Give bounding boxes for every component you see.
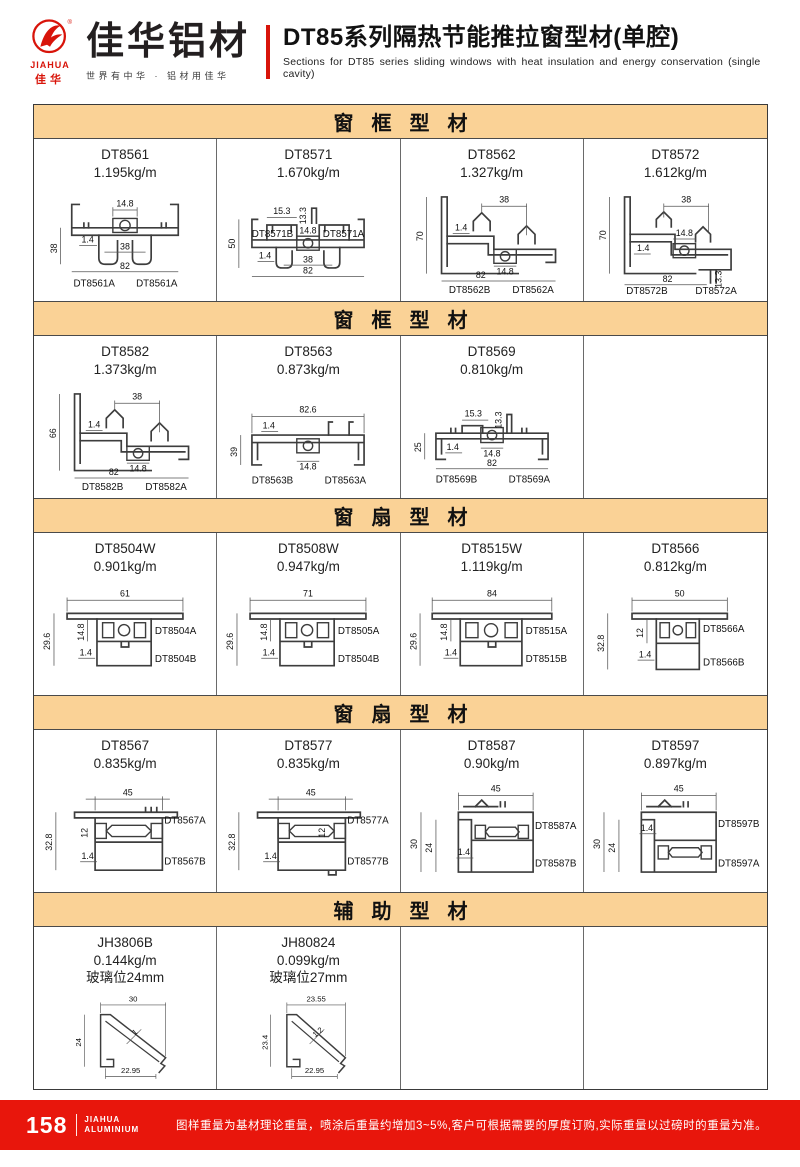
footer-brand-top: JIAHUA xyxy=(84,1115,139,1125)
svg-text:70: 70 xyxy=(414,231,424,241)
section-header: 窗扇型材 xyxy=(34,695,767,730)
profile-weight: 0.099kg/m xyxy=(217,952,399,970)
svg-text:39: 39 xyxy=(229,447,239,457)
profile-code: JH3806B xyxy=(34,934,216,952)
svg-text:1.4: 1.4 xyxy=(444,648,456,658)
svg-text:1.4: 1.4 xyxy=(637,243,649,253)
svg-text:29.6: 29.6 xyxy=(42,633,52,650)
logo-brand-cn: 佳华 xyxy=(35,71,65,87)
svg-text:13.3: 13.3 xyxy=(299,207,309,224)
svg-text:DT8504B: DT8504B xyxy=(338,654,380,665)
svg-text:29.6: 29.6 xyxy=(226,633,236,650)
svg-text:32.8: 32.8 xyxy=(596,635,606,652)
profile-code: DT8597 xyxy=(584,737,767,755)
svg-text:15.3: 15.3 xyxy=(464,408,481,418)
profile-drawing: 71 29.6 14.8 1.4 DT8505A DT8504B xyxy=(222,576,394,690)
profile-code: DT8587 xyxy=(401,737,583,755)
profile-code: DT8577 xyxy=(217,737,399,755)
section-frame-1: 窗框型材 DT8561 1.195kg/m 14.8 38 1.4 xyxy=(34,105,767,301)
page-subtitle: Sections for DT85 series sliding windows… xyxy=(283,56,778,80)
profile-code: DT8515W xyxy=(401,540,583,558)
footer-brand: JIAHUA ALUMINIUM xyxy=(84,1115,139,1134)
profile-row: DT8582 1.373kg/m 38 66 1.4 xyxy=(34,336,767,498)
svg-text:14.8: 14.8 xyxy=(259,623,269,640)
profile-code: DT8504W xyxy=(34,540,216,558)
profile-drawing: 61 29.6 14.8 1.4 DT8504A DT8504B xyxy=(39,576,211,690)
svg-text:70: 70 xyxy=(598,230,608,240)
svg-text:1.4: 1.4 xyxy=(639,649,651,659)
profile-cell-dt8567: DT8567 0.835kg/m 45 32.8 12 1.4 xyxy=(34,730,217,892)
svg-text:23.4: 23.4 xyxy=(261,1034,270,1050)
svg-text:14.8: 14.8 xyxy=(76,623,86,640)
svg-text:82: 82 xyxy=(303,266,313,276)
svg-text:45: 45 xyxy=(306,788,316,798)
profile-weight: 1.612kg/m xyxy=(584,164,767,182)
svg-text:45: 45 xyxy=(674,784,684,794)
brand-tagline: 世界有中华 · 铝材用佳华 xyxy=(86,69,250,82)
svg-text:66: 66 xyxy=(48,428,58,438)
profile-cell-dt8572: DT8572 1.612kg/m 38 70 14.8 1.4 xyxy=(584,139,767,301)
profile-row: DT8561 1.195kg/m 14.8 38 1.4 xyxy=(34,139,767,301)
profile-drawing: 14.8 38 1.4 38 82 DT8561A DT8561A xyxy=(39,182,211,296)
profile-drawing: 38 70 1.4 14.8 82 DT8562B DT8562A xyxy=(406,182,578,296)
profile-weight: 0.144kg/m xyxy=(34,952,216,970)
svg-text:DT8577B: DT8577B xyxy=(348,857,390,868)
catalog-page: ® JIAHUA 佳华 佳华铝材 世界有中华 · 铝材用佳华 DT85系列隔热节… xyxy=(0,0,800,1167)
svg-text:38: 38 xyxy=(49,243,59,253)
svg-text:DT8562B: DT8562B xyxy=(449,285,491,296)
profile-cell-dt8561: DT8561 1.195kg/m 14.8 38 1.4 xyxy=(34,139,217,301)
profile-weight: 1.327kg/m xyxy=(401,164,583,182)
svg-text:12: 12 xyxy=(317,828,327,838)
profile-drawing: 84 29.6 14.8 1.4 DT8515A DT8515B xyxy=(406,576,578,690)
profile-drawing: 30 24 1 22.95 xyxy=(45,987,205,1083)
title-block: DT85系列隔热节能推拉窗型材(单腔) Sections for DT85 se… xyxy=(283,24,778,80)
profile-weight: 0.901kg/m xyxy=(34,558,216,576)
section-header: 辅助型材 xyxy=(34,892,767,927)
svg-text:14.8: 14.8 xyxy=(439,623,449,640)
footer-brand-bottom: ALUMINIUM xyxy=(84,1125,139,1135)
svg-text:38: 38 xyxy=(682,195,692,205)
logo-brand-en: JIAHUA xyxy=(30,60,70,70)
profile-code: DT8508W xyxy=(217,540,399,558)
svg-text:1.4: 1.4 xyxy=(82,235,94,245)
svg-text:DT8567A: DT8567A xyxy=(164,816,206,827)
profile-code: DT8569 xyxy=(401,343,583,361)
profile-cell-dt8563: DT8563 0.873kg/m 82.6 1.4 39 14.8 xyxy=(217,336,400,498)
profile-code: DT8571 xyxy=(217,146,399,164)
svg-text:®: ® xyxy=(68,19,73,26)
svg-text:71: 71 xyxy=(303,589,313,599)
svg-text:82: 82 xyxy=(109,467,119,477)
section-sash-1: 窗扇型材 DT8504W 0.901kg/m 61 29.6 14.8 xyxy=(34,498,767,695)
profile-weight: 0.810kg/m xyxy=(401,361,583,379)
svg-text:DT8571B: DT8571B xyxy=(252,229,294,240)
svg-text:1.4: 1.4 xyxy=(446,442,458,452)
profile-code: DT8582 xyxy=(34,343,216,361)
svg-text:1.4: 1.4 xyxy=(457,847,469,857)
page-header: ® JIAHUA 佳华 佳华铝材 世界有中华 · 铝材用佳华 DT85系列隔热节… xyxy=(22,12,778,92)
profile-cell-empty xyxy=(584,336,767,498)
svg-text:30: 30 xyxy=(593,839,603,849)
profile-code: JH80824 xyxy=(217,934,399,952)
svg-text:DT8571A: DT8571A xyxy=(323,229,365,240)
svg-text:1.4: 1.4 xyxy=(455,223,467,233)
svg-text:DT8569A: DT8569A xyxy=(508,475,550,486)
svg-text:DT8515B: DT8515B xyxy=(525,654,567,665)
svg-text:32.8: 32.8 xyxy=(227,834,237,851)
profile-row: JH3806B 0.144kg/m 玻璃位24mm 30 24 1 22.95 xyxy=(34,927,767,1089)
svg-text:DT8561A: DT8561A xyxy=(136,279,178,290)
page-number: 158 xyxy=(26,1112,67,1139)
brand-block: 佳华铝材 世界有中华 · 铝材用佳华 xyxy=(86,23,250,82)
svg-text:82: 82 xyxy=(475,270,485,280)
glass-position: 玻璃位24mm xyxy=(34,969,216,987)
svg-text:25: 25 xyxy=(413,442,423,452)
page-footer: 158 JIAHUA ALUMINIUM 图样重量为基材理论重量，喷涂后重量约增… xyxy=(0,1100,800,1150)
svg-text:DT8582A: DT8582A xyxy=(146,482,188,493)
svg-text:38: 38 xyxy=(120,241,130,251)
svg-text:14.8: 14.8 xyxy=(117,198,134,208)
svg-text:1.4: 1.4 xyxy=(263,421,275,431)
svg-text:DT8563A: DT8563A xyxy=(325,476,367,487)
profile-drawing: 82.6 1.4 39 14.8 DT8563B DT8563A xyxy=(222,379,394,493)
svg-text:45: 45 xyxy=(490,784,500,794)
profile-drawing: 45 30 24 1.4 DT8587A DT8587B xyxy=(406,773,578,887)
section-auxiliary: 辅助型材 JH3806B 0.144kg/m 玻璃位24mm 30 24 1 xyxy=(34,892,767,1089)
profile-weight: 0.90kg/m xyxy=(401,755,583,773)
svg-text:14.8: 14.8 xyxy=(496,267,513,277)
svg-text:DT8504A: DT8504A xyxy=(155,626,197,637)
svg-text:38: 38 xyxy=(499,195,509,205)
svg-text:82: 82 xyxy=(487,458,497,468)
svg-text:DT8504B: DT8504B xyxy=(155,654,197,665)
profile-drawing: 45 32.8 12 1.4 DT8577A DT8577B xyxy=(222,773,394,887)
profile-weight: 0.835kg/m xyxy=(217,755,399,773)
svg-text:61: 61 xyxy=(120,589,130,599)
page-title: DT85系列隔热节能推拉窗型材(单腔) xyxy=(283,24,778,52)
header-divider xyxy=(266,25,270,79)
svg-text:13.3: 13.3 xyxy=(714,271,724,288)
svg-text:24: 24 xyxy=(608,843,618,853)
svg-text:1.4: 1.4 xyxy=(88,420,100,430)
svg-text:DT8505A: DT8505A xyxy=(338,626,380,637)
profile-cell-dt8597: DT8597 0.897kg/m 45 30 24 1.4 xyxy=(584,730,767,892)
profile-cell-dt8571: DT8571 1.670kg/m 15.3 13.3 14.8 50 xyxy=(217,139,400,301)
svg-text:45: 45 xyxy=(123,788,133,798)
profile-drawing: 38 70 14.8 1.4 82 13.3 DT8572B DT8572A xyxy=(589,182,761,296)
profile-cell-dt8566: DT8566 0.812kg/m 50 32.8 12 1.4 xyxy=(584,533,767,695)
glass-position: 玻璃位27mm xyxy=(217,969,399,987)
svg-text:12: 12 xyxy=(80,828,90,838)
svg-text:38: 38 xyxy=(303,254,313,264)
profile-cell-dt8582: DT8582 1.373kg/m 38 66 1.4 xyxy=(34,336,217,498)
svg-text:82: 82 xyxy=(120,261,130,271)
svg-text:DT8567B: DT8567B xyxy=(164,857,206,868)
svg-text:30: 30 xyxy=(409,839,419,849)
profile-cell-dt8577: DT8577 0.835kg/m 45 32.8 12 1.4 xyxy=(217,730,400,892)
svg-text:30: 30 xyxy=(129,994,138,1003)
profile-weight: 1.195kg/m xyxy=(34,164,216,182)
profile-cell-dt8504w: DT8504W 0.901kg/m 61 29.6 14.8 1.4 xyxy=(34,533,217,695)
profile-drawing: 15.3 13.3 14.8 50 1.4 38 82 DT8571B DT85… xyxy=(222,182,394,296)
svg-text:DT8587A: DT8587A xyxy=(535,821,577,832)
svg-text:1.4: 1.4 xyxy=(82,851,94,861)
profile-drawing: 45 32.8 12 1.4 DT8567A DT8567B xyxy=(39,773,211,887)
svg-text:14.8: 14.8 xyxy=(130,464,147,474)
svg-text:14.8: 14.8 xyxy=(300,462,317,472)
profile-code: DT8561 xyxy=(34,146,216,164)
svg-text:DT8563B: DT8563B xyxy=(252,476,294,487)
profile-weight: 1.119kg/m xyxy=(401,558,583,576)
profile-weight: 0.812kg/m xyxy=(584,558,767,576)
svg-text:22.95: 22.95 xyxy=(305,1066,324,1075)
svg-text:DT8566A: DT8566A xyxy=(703,624,745,635)
profile-code: DT8567 xyxy=(34,737,216,755)
svg-text:DT8569B: DT8569B xyxy=(435,475,477,486)
svg-text:DT8572A: DT8572A xyxy=(696,286,738,296)
jiahua-logo-icon: ® xyxy=(27,17,73,59)
profile-row: DT8504W 0.901kg/m 61 29.6 14.8 1.4 xyxy=(34,533,767,695)
profile-cell-dt8508w: DT8508W 0.947kg/m 71 29.6 14.8 1.4 xyxy=(217,533,400,695)
svg-text:DT8561A: DT8561A xyxy=(74,279,116,290)
svg-text:50: 50 xyxy=(227,239,237,249)
svg-text:12: 12 xyxy=(636,628,646,638)
svg-text:24: 24 xyxy=(424,843,434,853)
profile-code: DT8562 xyxy=(401,146,583,164)
profile-code: DT8563 xyxy=(217,343,399,361)
profile-weight: 0.835kg/m xyxy=(34,755,216,773)
brand-name: 佳华铝材 xyxy=(86,23,250,61)
profile-cell-empty xyxy=(584,927,767,1089)
profile-drawing: 50 32.8 12 1.4 DT8566A DT8566B xyxy=(589,576,761,690)
svg-text:DT8597A: DT8597A xyxy=(718,859,760,870)
svg-text:82: 82 xyxy=(663,274,673,284)
profile-row: DT8567 0.835kg/m 45 32.8 12 1.4 xyxy=(34,730,767,892)
svg-text:DT8597B: DT8597B xyxy=(718,819,760,830)
svg-text:29.6: 29.6 xyxy=(408,633,418,650)
svg-text:1.4: 1.4 xyxy=(265,851,277,861)
svg-text:DT8582B: DT8582B xyxy=(82,482,124,493)
svg-text:DT8562A: DT8562A xyxy=(512,285,554,296)
svg-text:84: 84 xyxy=(487,589,497,599)
svg-text:14.8: 14.8 xyxy=(300,225,317,235)
profile-cell-dt8562: DT8562 1.327kg/m 38 70 1.4 xyxy=(401,139,584,301)
svg-text:24: 24 xyxy=(74,1037,83,1046)
section-header: 窗框型材 xyxy=(34,105,767,139)
svg-text:23.55: 23.55 xyxy=(307,994,326,1003)
profile-weight: 0.873kg/m xyxy=(217,361,399,379)
footer-note: 图样重量为基材理论重量，喷涂后重量约增加3~5%,客户可根据需要的厚度订购,实际… xyxy=(169,1117,774,1133)
section-frame-2: 窗框型材 DT8582 1.373kg/m 38 66 1.4 xyxy=(34,301,767,498)
footer-divider xyxy=(76,1114,77,1136)
svg-text:50: 50 xyxy=(675,589,685,599)
svg-text:32.8: 32.8 xyxy=(44,834,54,851)
svg-text:15.3: 15.3 xyxy=(274,206,291,216)
profile-code: DT8572 xyxy=(584,146,767,164)
profile-weight: 1.670kg/m xyxy=(217,164,399,182)
profile-code: DT8566 xyxy=(584,540,767,558)
profile-cell-dt8587: DT8587 0.90kg/m 45 30 24 1.4 xyxy=(401,730,584,892)
svg-text:22.95: 22.95 xyxy=(121,1066,140,1075)
svg-text:DT8577A: DT8577A xyxy=(348,816,390,827)
profile-cell-jh80824: JH80824 0.099kg/m 玻璃位27mm 23.55 23.4 1.2… xyxy=(217,927,400,1089)
svg-text:38: 38 xyxy=(132,392,142,402)
svg-text:1.4: 1.4 xyxy=(259,251,271,261)
svg-text:DT8515A: DT8515A xyxy=(525,626,567,637)
profile-cell-dt8515w: DT8515W 1.119kg/m 84 29.6 14.8 1.4 xyxy=(401,533,584,695)
svg-text:13.3: 13.3 xyxy=(493,412,503,429)
profile-weight: 0.897kg/m xyxy=(584,755,767,773)
svg-text:1.4: 1.4 xyxy=(80,648,92,658)
profile-cell-dt8569: DT8569 0.810kg/m 15.3 13.3 25 1.4 xyxy=(401,336,584,498)
profile-weight: 1.373kg/m xyxy=(34,361,216,379)
section-sash-2: 窗扇型材 DT8567 0.835kg/m 45 32.8 12 xyxy=(34,695,767,892)
svg-text:82.6: 82.6 xyxy=(300,405,317,415)
svg-text:1.4: 1.4 xyxy=(263,648,275,658)
profile-drawing: 45 30 24 1.4 DT8597B DT8597A xyxy=(589,773,761,887)
profile-weight: 0.947kg/m xyxy=(217,558,399,576)
svg-text:DT8587B: DT8587B xyxy=(535,859,577,870)
profile-cell-jh3806b: JH3806B 0.144kg/m 玻璃位24mm 30 24 1 22.95 xyxy=(34,927,217,1089)
section-header: 窗框型材 xyxy=(34,301,767,336)
section-header: 窗扇型材 xyxy=(34,498,767,533)
svg-text:1.4: 1.4 xyxy=(641,823,653,833)
svg-text:14.8: 14.8 xyxy=(676,228,693,238)
svg-text:DT8566B: DT8566B xyxy=(703,658,745,669)
profile-drawing: 38 66 1.4 14.8 82 DT8582B DT8582A xyxy=(39,379,211,493)
profile-table: 窗框型材 DT8561 1.195kg/m 14.8 38 1.4 xyxy=(33,104,768,1090)
svg-text:DT8572B: DT8572B xyxy=(627,286,669,296)
profile-cell-empty xyxy=(401,927,584,1089)
profile-drawing: 15.3 13.3 25 1.4 14.8 82 DT8569B DT8569A xyxy=(406,379,578,493)
company-logo: ® JIAHUA 佳华 xyxy=(22,17,78,87)
profile-drawing: 23.55 23.4 1.2 22.95 xyxy=(228,987,388,1083)
